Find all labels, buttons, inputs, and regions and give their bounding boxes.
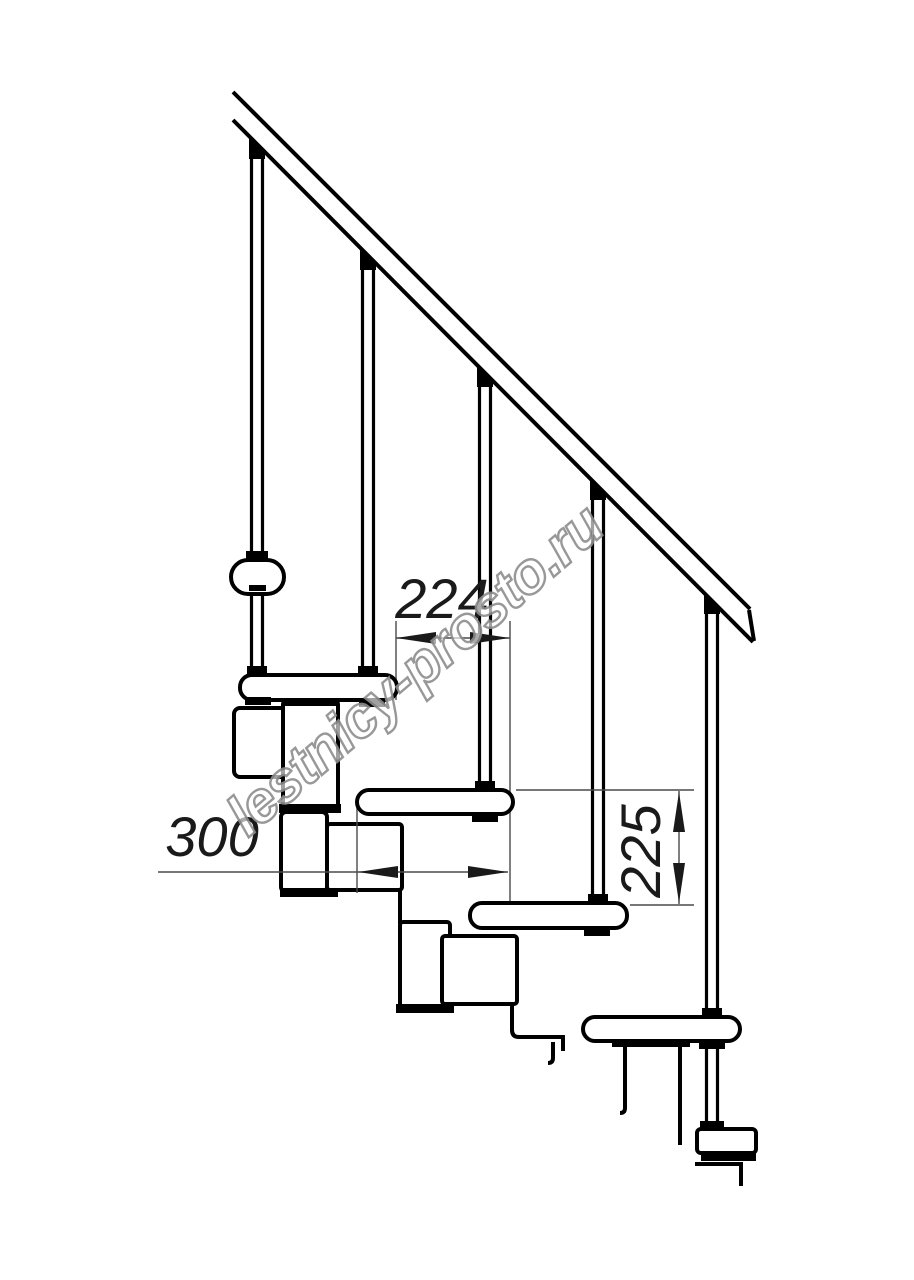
- staircase-diagram: 224 300 225 lestnicy-prosto.ru: [0, 0, 914, 1280]
- dim-arrow-up: [673, 792, 685, 832]
- baluster-foot: [584, 928, 610, 936]
- module-under-tread-3: [442, 936, 517, 1004]
- module-under-tread-4: [620, 1047, 625, 1113]
- dim-arrow-right: [468, 866, 508, 878]
- module-step-connector: [548, 1042, 553, 1063]
- baluster-foot: [245, 697, 271, 705]
- tread-end-view-bottom: [697, 1129, 756, 1153]
- tread-2: [357, 790, 513, 814]
- baluster-collar: [246, 551, 268, 561]
- baluster-2: [360, 247, 376, 668]
- tread-3: [470, 903, 627, 928]
- dim-label-225: 225: [609, 803, 672, 898]
- baluster-collar: [700, 1121, 724, 1130]
- module-end-view-2: [281, 812, 327, 892]
- module-under-tread-2: [327, 824, 402, 890]
- baluster-foot: [699, 1041, 725, 1049]
- baluster-foot: [702, 1008, 722, 1018]
- module-step-connector: [512, 1004, 563, 1051]
- staircase-drawing-page: 224 300 225 lestnicy-prosto.ru: [0, 0, 914, 1280]
- dim-arrow-down: [673, 863, 685, 903]
- bottom-step-line: [695, 1164, 741, 1186]
- baluster-foot: [475, 781, 495, 791]
- tread-4: [583, 1017, 740, 1041]
- baluster-foot: [472, 814, 498, 822]
- module-joint: [701, 1152, 756, 1161]
- baluster-foot: [247, 666, 267, 676]
- baluster-collar: [249, 585, 266, 591]
- baluster-foot: [588, 894, 608, 904]
